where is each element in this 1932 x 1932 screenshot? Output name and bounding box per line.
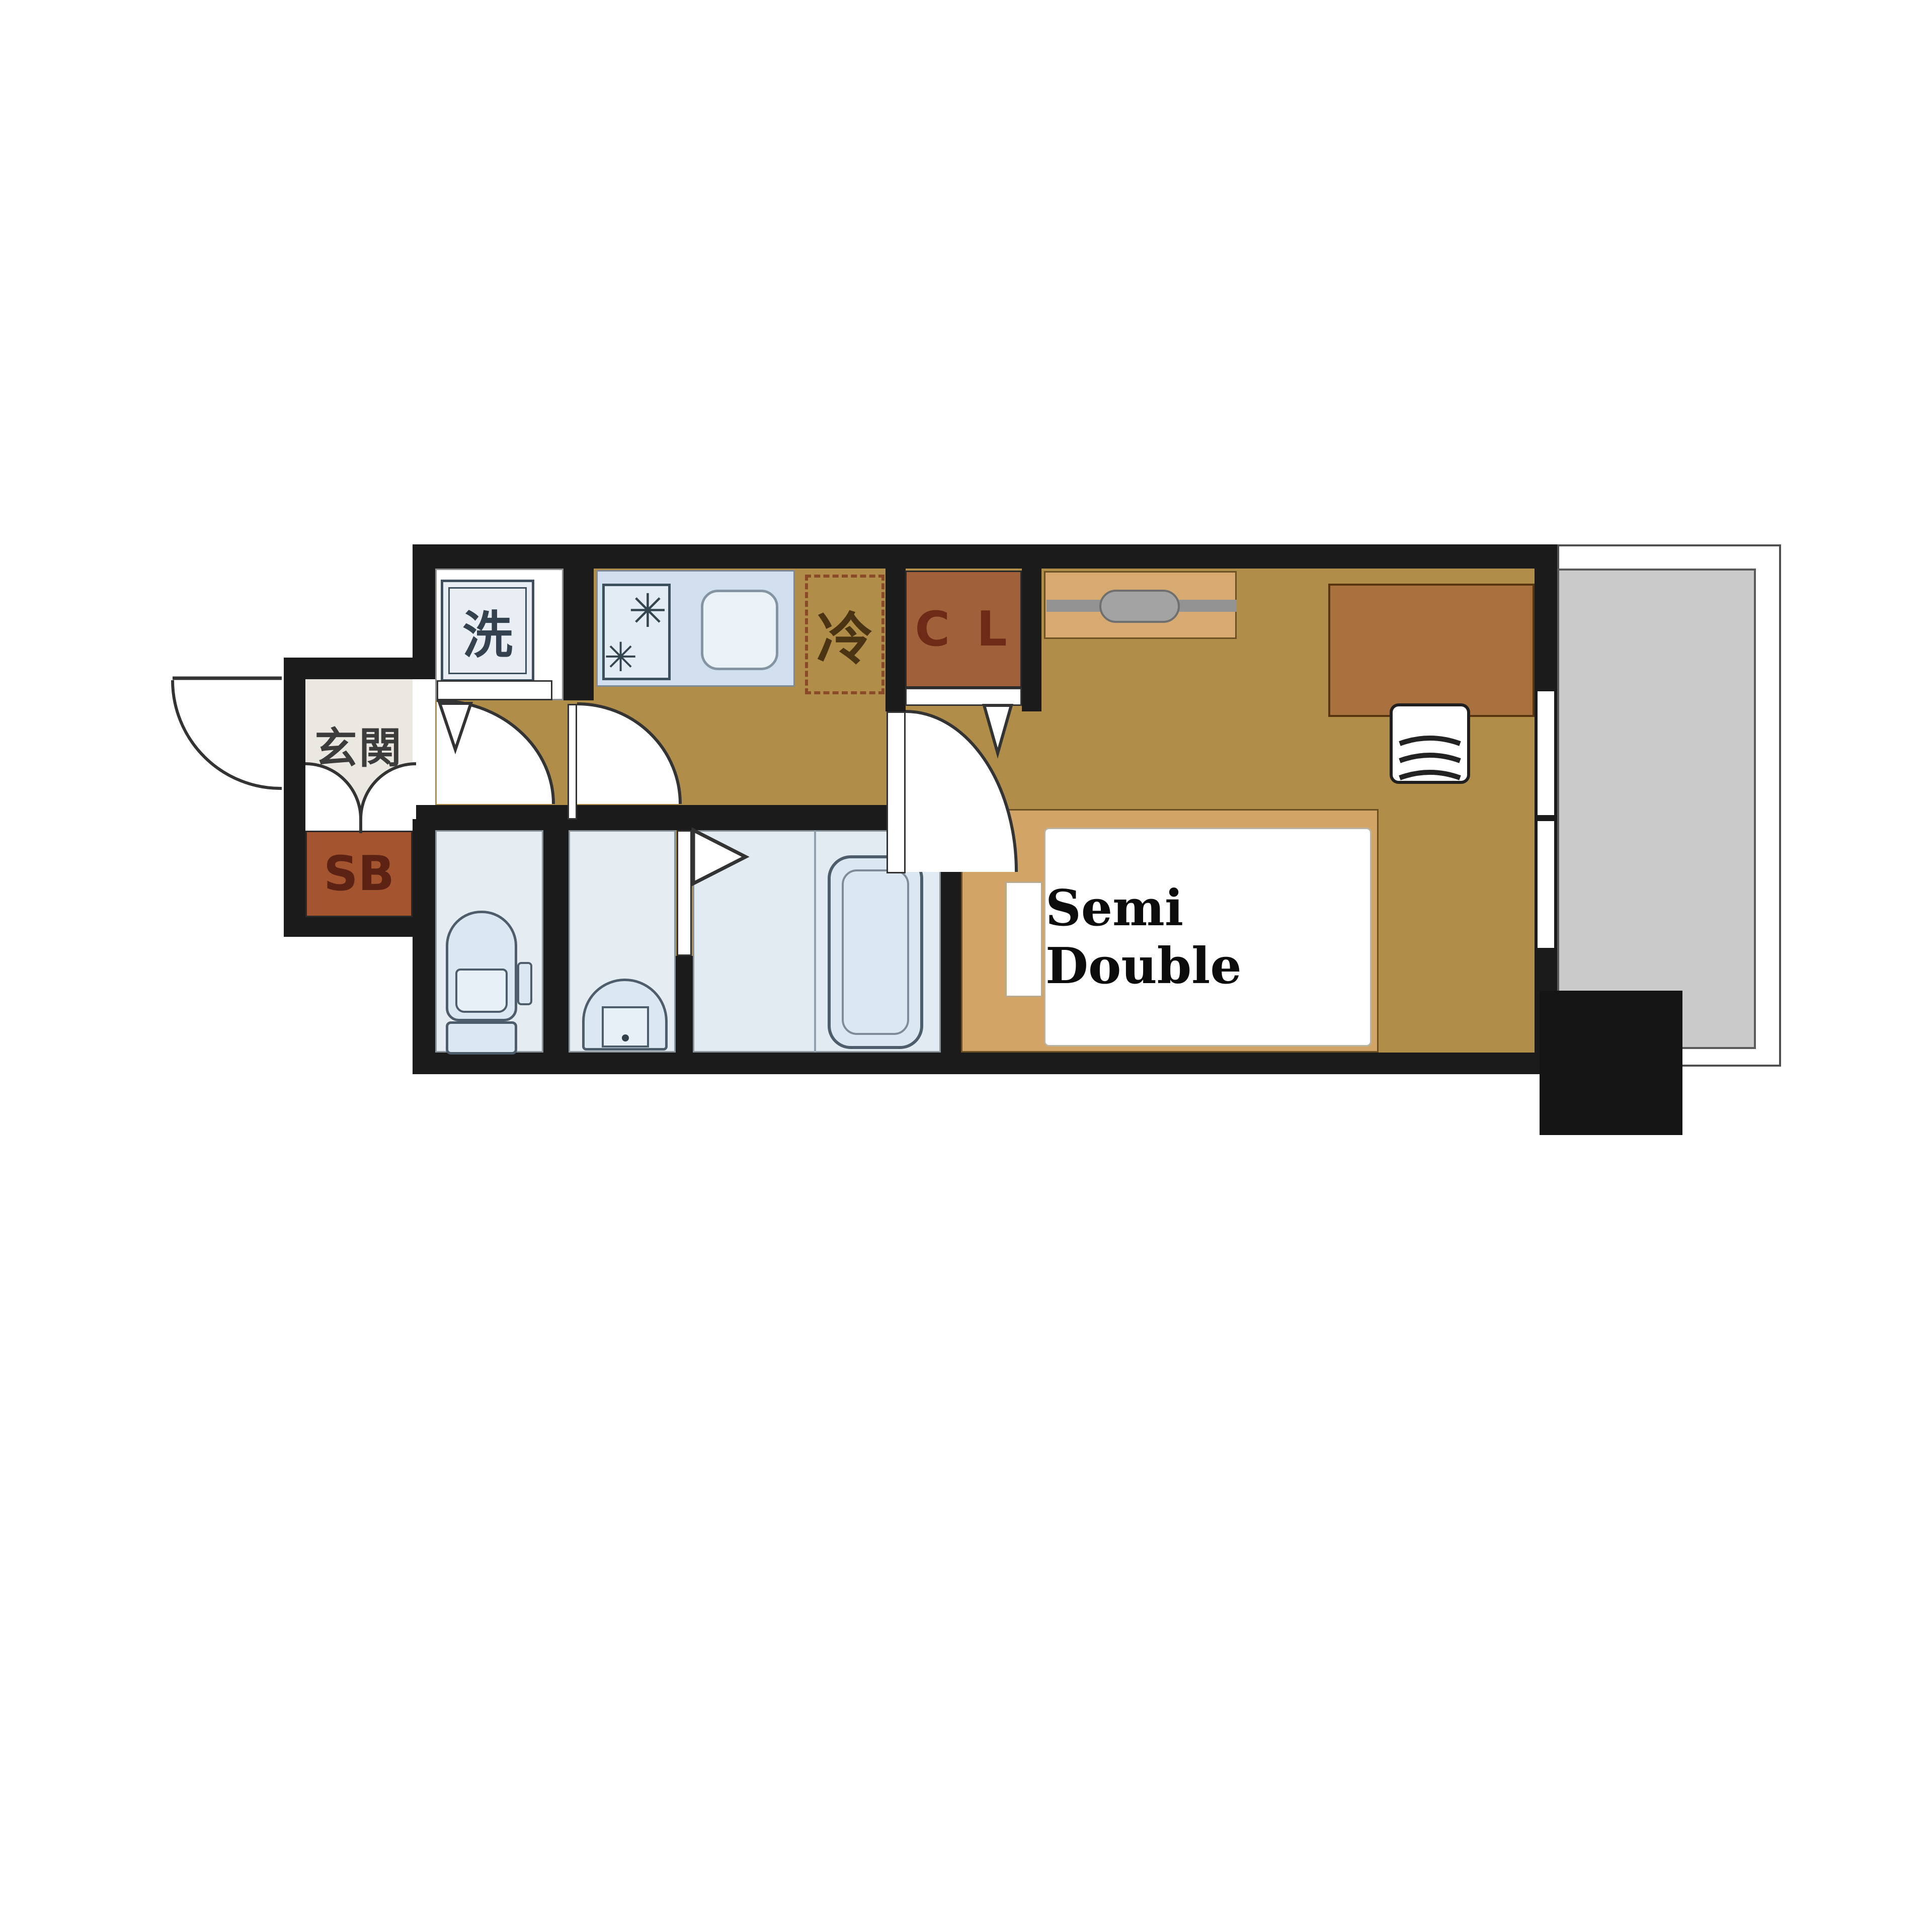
toilet-tank-icon <box>446 1021 517 1055</box>
refrigerator-label: 冷 <box>808 578 881 691</box>
bed-label: Semi Double <box>1045 829 1370 1045</box>
washbasin-drain-dot <box>622 1034 629 1041</box>
refrigerator-space: 冷 <box>805 575 884 694</box>
bathtub-inner-line <box>842 869 909 1035</box>
closet-label: C L <box>907 572 1020 686</box>
bath-door-leaf <box>677 830 692 956</box>
wall-left-upper <box>413 544 435 679</box>
hanger-slider <box>1099 590 1180 623</box>
burner2-icon: ✳ <box>604 634 637 681</box>
wall-top <box>413 544 1557 569</box>
pillar <box>1540 991 1682 1135</box>
desk <box>1328 584 1535 717</box>
shoe-box: SB <box>305 831 413 917</box>
closet-box: C L <box>905 571 1022 688</box>
toilet-handle-icon <box>517 962 532 1005</box>
toilet-seat-line <box>455 969 508 1013</box>
closet-door-opening <box>905 688 1022 706</box>
genkan-label: 玄関 <box>305 720 413 769</box>
wall-closet-right <box>1022 544 1041 711</box>
stove-icon: ✳ ✳ <box>602 584 671 680</box>
bed-mattress: Semi Double <box>1044 828 1372 1046</box>
wall-bath-bedroom <box>941 827 961 1053</box>
wall-bottom <box>413 1053 1557 1074</box>
wall-laundry-kitchen <box>563 569 594 700</box>
wall-kitchen-bedroom <box>886 544 906 711</box>
laundry-door-opening <box>437 680 552 700</box>
floorplan: 玄関 SB ✳ ✳ 冷 洗 <box>0 0 1932 1932</box>
washing-machine-label: 洗 <box>450 589 525 673</box>
wall-toilet-washbasin <box>543 830 569 1053</box>
wall-middle <box>413 805 961 830</box>
window-pane-lower <box>1538 821 1554 948</box>
wall-washbasin-bath-lower <box>676 956 693 1053</box>
genkan-wall-left <box>284 658 305 937</box>
burner-icon: ✳ <box>628 584 667 638</box>
window-pane-upper <box>1538 691 1554 815</box>
wall-left-lower <box>413 807 435 1074</box>
entrance-door-arc <box>173 680 282 788</box>
bed-pillow <box>1005 881 1042 997</box>
washing-machine-icon: 洗 <box>441 580 534 682</box>
bathroom-divider-line <box>814 830 816 1053</box>
balcony-deck <box>1557 569 1756 1049</box>
kitchen-door-leaf <box>568 704 577 820</box>
chair <box>1390 703 1470 784</box>
sink-icon <box>701 590 778 670</box>
shoe-box-label: SB <box>307 832 411 916</box>
bedroom-door-leaf <box>887 711 906 873</box>
